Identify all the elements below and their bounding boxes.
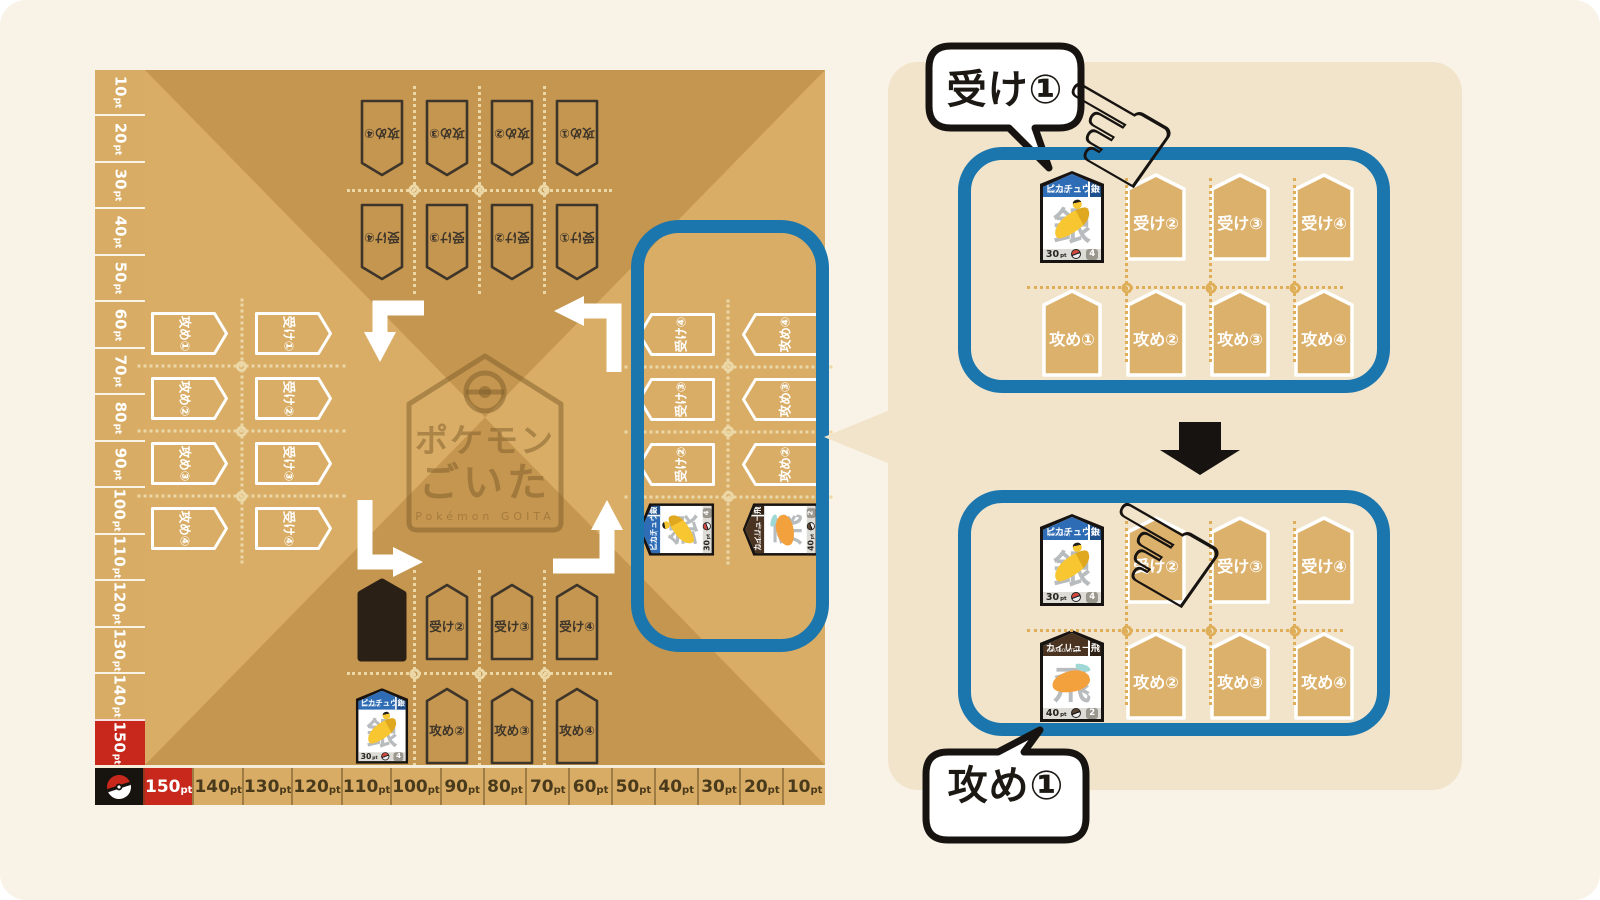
logo-line1: ポケモン: [415, 421, 555, 460]
board-slot[interactable]: 受け①: [254, 311, 334, 357]
scale-cell-left-130pt: 130pt: [95, 626, 145, 672]
scale-cell-bottom-40pt: 40pt: [654, 768, 697, 805]
board-slot[interactable]: 攻め②: [489, 98, 535, 178]
scale-cell-bottom-130pt: 130pt: [242, 768, 291, 805]
board-slot[interactable]: 攻め①: [554, 98, 600, 178]
speech-bubble-attack-label: 攻め①: [922, 752, 1090, 812]
panel-slot[interactable]: 攻め③: [1209, 631, 1271, 721]
scale-cell-bottom-80pt: 80pt: [483, 768, 526, 805]
board-slot[interactable]: 攻め②: [424, 686, 470, 766]
scale-cell-left-20pt: 20pt: [95, 114, 145, 160]
board-slot[interactable]: 受け②: [489, 202, 535, 282]
scale-cell-bottom-10pt: 10pt: [782, 768, 825, 805]
board-slot[interactable]: 受け③: [489, 582, 535, 662]
board-cell-receive-1[interactable]: [359, 582, 405, 662]
scale-cell-left-150pt: 150pt: [95, 719, 145, 765]
scale-cell-left-60pt: 60pt: [95, 300, 145, 346]
scale-cell-left-50pt: 50pt: [95, 254, 145, 300]
board-slot[interactable]: 攻め②: [150, 376, 230, 422]
board-slot[interactable]: 受け④: [554, 582, 600, 662]
scale-cell-bottom-120pt: 120pt: [291, 768, 340, 805]
point-scale-left: 10pt20pt30pt40pt50pt60pt70pt80pt90pt100p…: [95, 70, 145, 765]
pokeball-icon: [1071, 708, 1081, 718]
scale-cell-left-10pt: 10pt: [95, 70, 145, 114]
scale-cell-left-120pt: 120pt: [95, 579, 145, 625]
scale-cell-bottom-110pt: 110pt: [341, 768, 390, 805]
scale-cell-bottom-150pt: 150pt: [143, 768, 192, 805]
scale-cell-bottom-100pt: 100pt: [390, 768, 439, 805]
board-slot[interactable]: 受け③: [254, 441, 334, 487]
board-slot[interactable]: 攻め③: [424, 98, 470, 178]
scale-cell-left-140pt: 140pt: [95, 672, 145, 718]
point-scale-bottom: 150pt140pt130pt120pt110pt100pt90pt80pt70…: [95, 765, 825, 805]
scale-cell-bottom-30pt: 30pt: [697, 768, 740, 805]
panel-slot[interactable]: 攻め③: [1209, 288, 1271, 378]
board-slot[interactable]: 受け④: [359, 202, 405, 282]
scale-cell-left-30pt: 30pt: [95, 161, 145, 207]
pokeball-icon: [95, 768, 143, 805]
board-slot[interactable]: 攻め④: [359, 98, 405, 178]
panel-slot[interactable]: 受け④: [1293, 515, 1355, 605]
board-slot[interactable]: 受け②: [424, 582, 470, 662]
scale-cell-left-70pt: 70pt: [95, 347, 145, 393]
turn-arrow-up-icon: [549, 498, 625, 578]
callout-triangle: [824, 410, 890, 464]
board-slot[interactable]: 受け④: [254, 506, 334, 552]
facedown-card[interactable]: [357, 578, 407, 666]
pokeball-icon: [1071, 249, 1081, 259]
board-slot[interactable]: 攻め③: [489, 686, 535, 766]
scale-cell-left-100pt: 100pt: [95, 486, 145, 532]
board-cell-attack-1[interactable]: ピカチュウ(PIKACHU) 銀 銀 30pt4: [359, 686, 405, 766]
pokeball-icon: [381, 753, 389, 761]
scale-cell-bottom-70pt: 70pt: [525, 768, 568, 805]
game-card-pikachu[interactable]: ピカチュウ(PIKACHU) 銀 銀 30pt4: [356, 688, 408, 763]
scale-cell-bottom-20pt: 20pt: [739, 768, 782, 805]
board-slot[interactable]: 攻め④: [150, 506, 230, 552]
panel-slot[interactable]: 受け③: [1209, 172, 1271, 262]
game-card-dragonite[interactable]: カイリュー(DRAGONITE) 飛 飛 40pt2: [1040, 630, 1104, 722]
board-slot[interactable]: 攻め③: [150, 441, 230, 487]
panel-cell-attack-1[interactable]: カイリュー(DRAGONITE) 飛 飛 40pt2: [1041, 631, 1103, 721]
board-slot[interactable]: 受け①: [554, 202, 600, 282]
player-area-left: 受け①受け②受け③受け④攻め①攻め②攻め③攻め④: [150, 311, 334, 552]
player-area-bottom: 受け②受け③受け④ ピカチュウ(PIKACHU) 銀 銀 30pt4 攻め②攻め…: [359, 582, 600, 766]
scale-cell-bottom-50pt: 50pt: [611, 768, 654, 805]
board-slot[interactable]: 受け③: [424, 202, 470, 282]
scale-cell-bottom-60pt: 60pt: [568, 768, 611, 805]
scale-cell-left-110pt: 110pt: [95, 533, 145, 579]
turn-arrow-right-icon: [357, 498, 429, 578]
board-slot[interactable]: 攻め①: [150, 311, 230, 357]
turn-arrow-left-icon: [550, 296, 626, 374]
panel-slot[interactable]: 攻め②: [1125, 288, 1187, 378]
next-step-arrow-icon: [1179, 422, 1221, 450]
scale-cell-bottom-140pt: 140pt: [192, 768, 241, 805]
panel-slot[interactable]: 攻め④: [1293, 288, 1355, 378]
logo-line2: ごいた: [419, 460, 551, 506]
panel-slot[interactable]: 攻め①: [1041, 288, 1103, 378]
board-slot[interactable]: 受け②: [254, 376, 334, 422]
panel-slot[interactable]: 攻め④: [1293, 631, 1355, 721]
scale-cell-left-80pt: 80pt: [95, 393, 145, 439]
scale-cell-left-90pt: 90pt: [95, 440, 145, 486]
logo-subtitle: Pokémon GOITA: [415, 510, 554, 523]
turn-arrow-down-icon: [358, 298, 428, 374]
panel-slot[interactable]: 受け④: [1293, 172, 1355, 262]
pokemon-goita-illustration: 10pt20pt30pt40pt50pt60pt70pt80pt90pt100p…: [0, 0, 1600, 900]
game-board-field: ポケモン ごいた Pokémon GOITA 受け①受け②受け③受け④攻め①攻め…: [145, 70, 825, 765]
board-slot[interactable]: 攻め④: [554, 686, 600, 766]
scale-cell-left-40pt: 40pt: [95, 207, 145, 253]
player-area-top: 受け①受け②受け③受け④攻め①攻め②攻め③攻め④: [359, 98, 600, 282]
scale-cell-bottom-90pt: 90pt: [440, 768, 483, 805]
highlighted-player-zone: [631, 220, 829, 652]
